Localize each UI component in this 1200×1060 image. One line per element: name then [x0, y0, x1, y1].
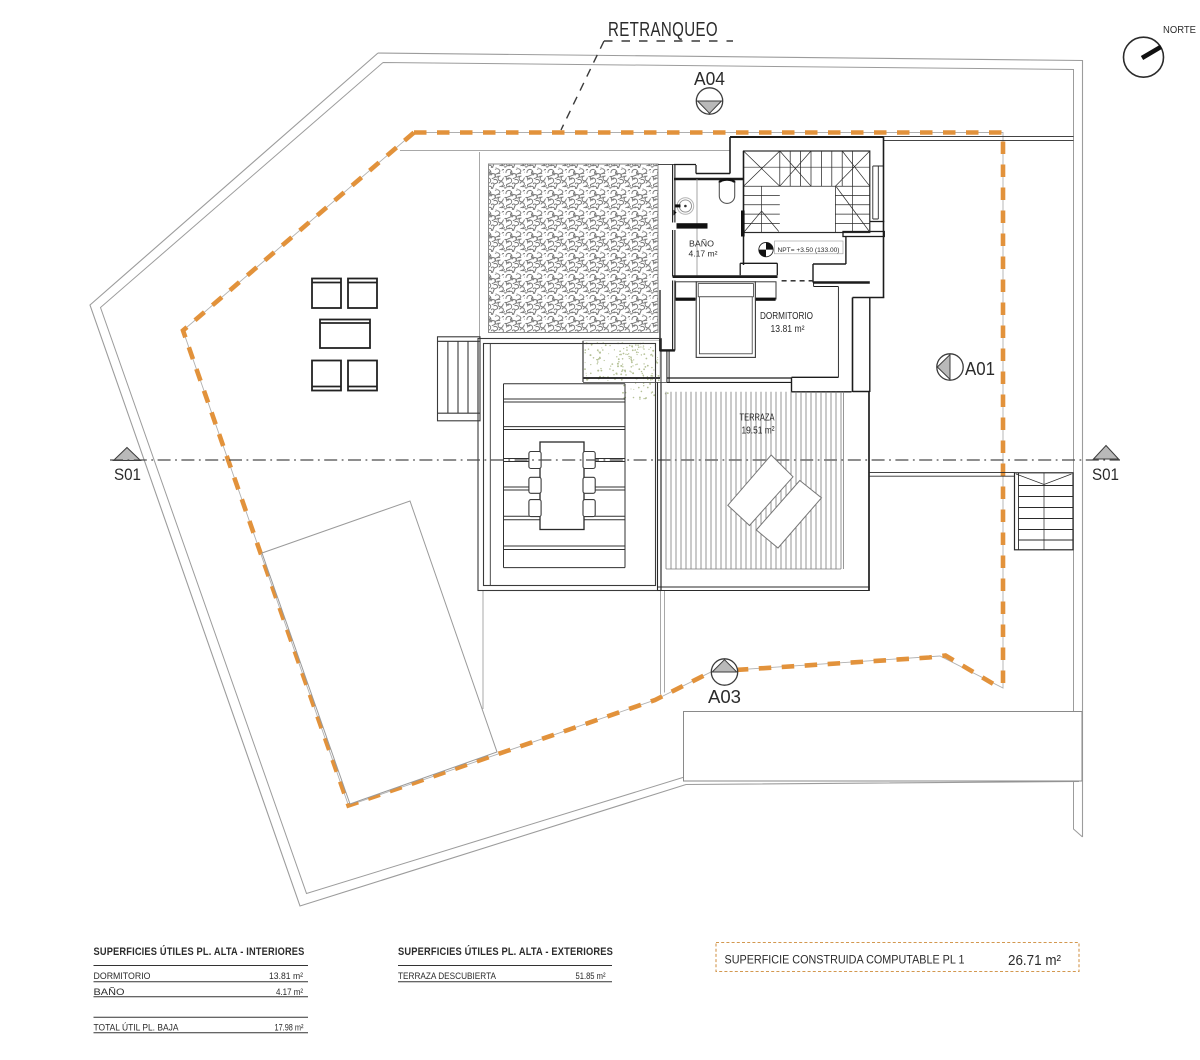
svg-text:A04: A04 [694, 68, 725, 89]
svg-text:13.81 m²: 13.81 m² [771, 324, 806, 335]
svg-text:NORTE: NORTE [1163, 25, 1196, 36]
svg-text:NPT= +3.50 (133.00): NPT= +3.50 (133.00) [778, 247, 840, 254]
svg-text:TOTAL ÚTIL PL. BAJA: TOTAL ÚTIL PL. BAJA [94, 1022, 180, 1033]
svg-text:DORMITORIO: DORMITORIO [94, 971, 151, 982]
svg-text:4.17 m²: 4.17 m² [276, 987, 304, 998]
svg-text:BAÑO: BAÑO [689, 239, 714, 248]
svg-text:S01: S01 [114, 465, 141, 484]
svg-text:DORMITORIO: DORMITORIO [760, 311, 813, 322]
svg-text:17.98 m²: 17.98 m² [275, 1022, 305, 1033]
svg-text:SUPERFICIES ÚTILES PL. ALTA -: SUPERFICIES ÚTILES PL. ALTA - INTERIORES [94, 945, 305, 958]
svg-text:TERRAZA: TERRAZA [740, 413, 775, 424]
svg-text:S01: S01 [1092, 465, 1119, 484]
svg-text:19.51 m²: 19.51 m² [742, 425, 776, 436]
svg-text:TERRAZA DESCUBIERTA: TERRAZA DESCUBIERTA [398, 971, 497, 982]
svg-text:A01: A01 [965, 358, 995, 379]
svg-text:4.17 m²: 4.17 m² [689, 250, 718, 259]
svg-text:RETRANQUEO: RETRANQUEO [608, 18, 718, 41]
svg-text:BAÑO: BAÑO [94, 987, 125, 998]
svg-text:A03: A03 [708, 686, 741, 707]
svg-text:26.71 m²: 26.71 m² [1008, 953, 1061, 969]
svg-text:13.81 m²: 13.81 m² [269, 971, 304, 982]
svg-text:SUPERFICIE CONSTRUIDA COMPUTAB: SUPERFICIE CONSTRUIDA COMPUTABLE PL 1 [725, 955, 965, 967]
svg-text:51.85 m²: 51.85 m² [576, 971, 607, 982]
svg-text:SUPERFICIES ÚTILES PL. ALTA -: SUPERFICIES ÚTILES PL. ALTA - EXTERIORES [398, 945, 613, 958]
